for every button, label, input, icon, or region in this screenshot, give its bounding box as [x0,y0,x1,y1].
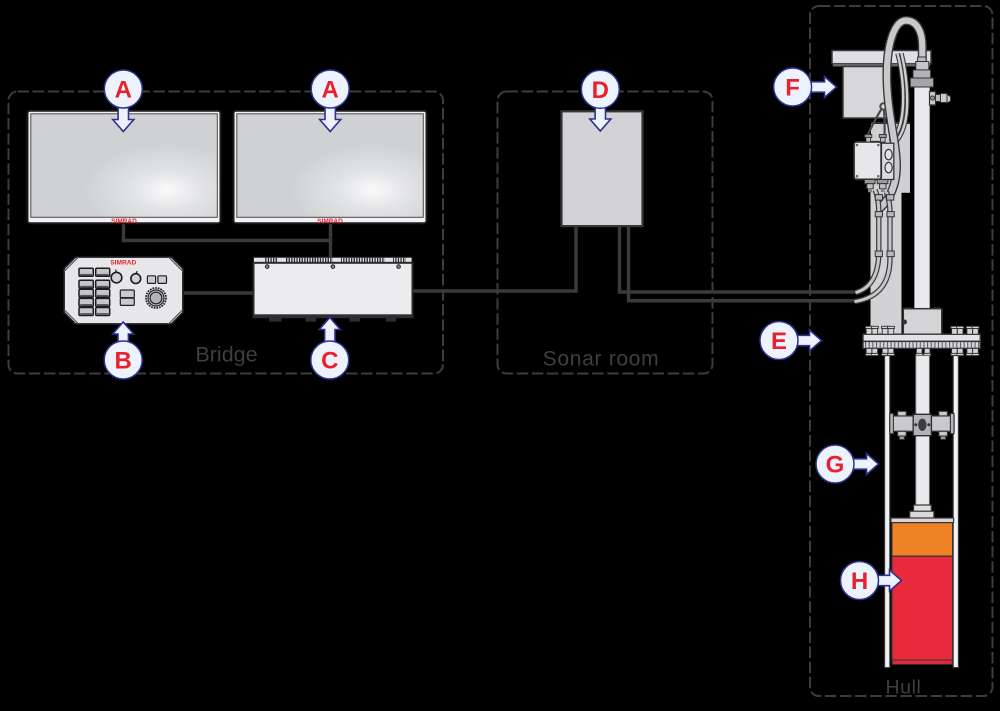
svg-text:D: D [592,77,609,104]
svg-text:E: E [771,328,787,355]
svg-text:Bridge: Bridge [195,343,257,367]
svg-text:A: A [322,77,339,104]
svg-text:F: F [785,75,800,102]
svg-text:SIMRAD: SIMRAD [111,218,137,225]
svg-text:SIMRAD: SIMRAD [110,259,136,266]
svg-text:A: A [115,77,132,104]
svg-text:B: B [115,348,132,375]
svg-text:G: G [826,452,845,479]
svg-text:Hull: Hull [886,677,922,699]
svg-text:SIMRAD: SIMRAD [317,218,343,225]
svg-text:H: H [851,568,868,595]
svg-text:Sonar room: Sonar room [543,348,660,371]
svg-text:C: C [321,348,338,375]
